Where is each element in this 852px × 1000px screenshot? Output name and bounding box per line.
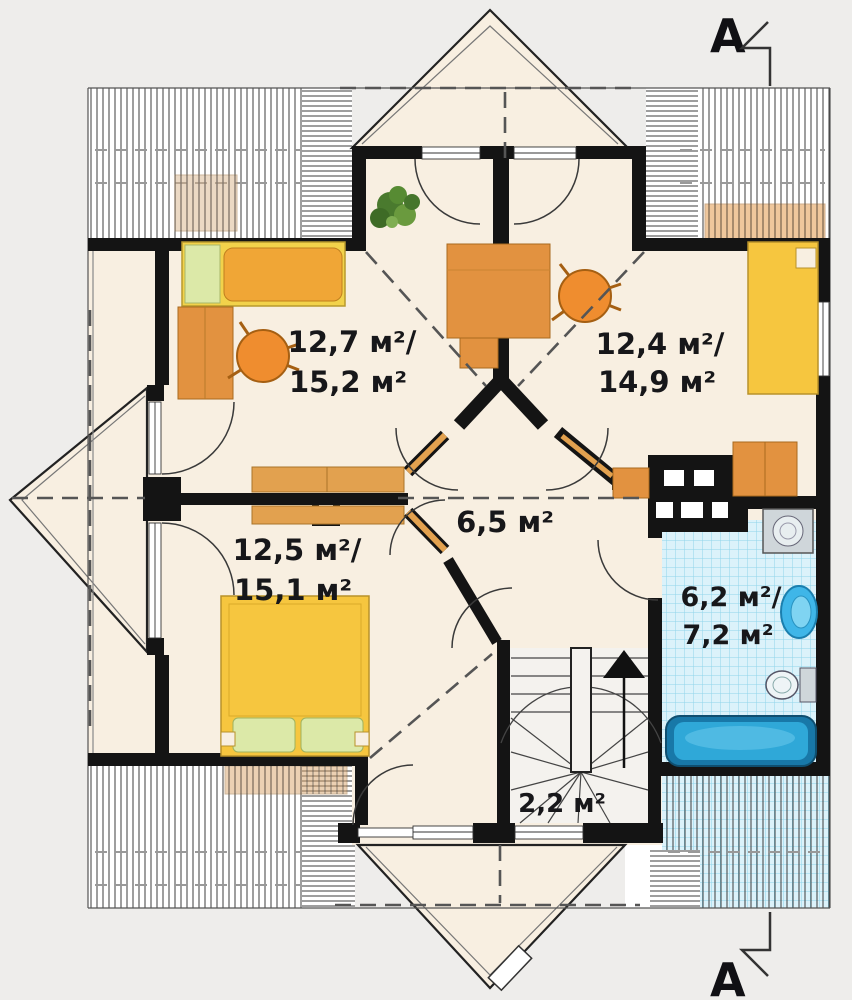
staircase-area-label: 2,2 м² bbox=[518, 789, 606, 819]
washing-machine bbox=[763, 509, 813, 553]
section-marker-bottom: A bbox=[710, 912, 770, 1000]
stair-wall-right bbox=[648, 640, 661, 830]
toilet bbox=[766, 668, 816, 702]
floor-plan-page: A A 12,7 м²/ 15,2 м² 12,4 м²/ 14,9 м² 12… bbox=[0, 0, 852, 1000]
left-dormer bbox=[10, 388, 147, 652]
bedroom-sw-area-line2: 15,1 м² bbox=[234, 573, 352, 607]
divider-wall-west bbox=[180, 493, 408, 505]
stair-spine bbox=[571, 648, 591, 772]
washbasin bbox=[781, 586, 817, 638]
bathroom-area-line2: 7,2 м² bbox=[682, 620, 773, 651]
cabinet-a bbox=[613, 468, 649, 498]
bedroom-ne-area-line2: 14,9 м² bbox=[598, 365, 716, 399]
wardrobe-upper bbox=[252, 467, 404, 492]
section-letter-top: A bbox=[710, 9, 746, 63]
stair-wall-left bbox=[497, 640, 510, 843]
bedroom-ne-area-line1: 12,4 м²/ bbox=[596, 327, 725, 361]
hall-area-label: 6,5 м² bbox=[456, 505, 554, 539]
bedroom-nw-area-line1: 12,7 м²/ bbox=[288, 325, 417, 359]
wardrobe-lower bbox=[252, 506, 404, 524]
bathroom-area-line1: 6,2 м²/ bbox=[681, 582, 782, 613]
bedroom-sw-area-line1: 12,5 м²/ bbox=[233, 533, 362, 567]
pillow-right bbox=[301, 718, 363, 752]
section-marker-top: A bbox=[710, 9, 770, 86]
bathtub bbox=[666, 716, 816, 766]
floor-plan-drawing: A A 12,7 м²/ 15,2 м² 12,4 м²/ 14,9 м² 12… bbox=[0, 0, 852, 1000]
bottom-dormer bbox=[358, 845, 625, 988]
section-letter-bottom: A bbox=[710, 953, 746, 1000]
wall-junction-west bbox=[143, 477, 181, 521]
top-dormer bbox=[352, 10, 628, 148]
desk-ne bbox=[447, 244, 550, 338]
pillow-left bbox=[233, 718, 295, 752]
bedroom-nw-area-line2: 15,2 м² bbox=[289, 365, 407, 399]
